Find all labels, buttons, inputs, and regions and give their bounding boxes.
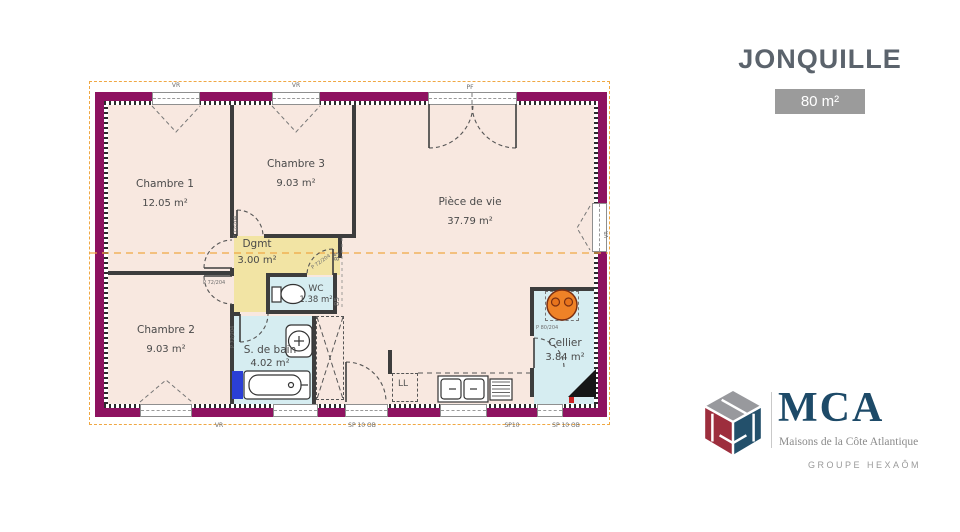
room-area: 4.02 m² [244,358,296,370]
room-area: 9.03 m² [137,344,195,356]
title-block: JONQUILLE 80 m² [720,44,920,114]
door-label-bath: P 72/204 [230,326,236,348]
room-area: 12.05 m² [136,198,194,210]
window-label-bottom-4: SP 10 OB [552,422,580,429]
window-label-bottom-3: SP10 [504,422,519,429]
room-name: Chambre 1 [136,178,194,190]
dim-label-85-a: 85 [334,252,340,261]
brand-tagline: Maisons de la Côte Atlantique [779,436,924,448]
room-label-chambre3: Chambre 3 9.03 m² [267,158,325,190]
window-label-bottom-1: VR [215,422,223,429]
room-name: Chambre 2 [137,324,195,336]
room-name: Pièce de vie [438,196,501,208]
room-label-dgmt: Dgmt 3.00 m² [237,238,276,267]
room-area: 3.00 m² [237,255,276,267]
room-name: S. de bain [244,344,296,356]
room-name: Cellier [545,337,584,349]
washing-machine-label: LL [398,381,408,387]
brand-group: GROUPE HEXAÔM [779,460,921,470]
room-label-cellier: Cellier 3.84 m² [545,337,584,364]
door-label-cellier: P 80/204 [536,325,558,331]
room-area: 37.79 m² [438,216,501,228]
room-name: WC [299,284,332,294]
room-label-salle-de-bain: S. de bain 4.02 m² [244,344,296,370]
room-area: 3.84 m² [545,352,584,364]
room-label-piece-de-vie: Pièce de vie 37.79 m² [438,196,501,228]
logo-divider [771,392,772,448]
room-label-chambre1: Chambre 1 12.05 m² [136,178,194,210]
door-label-c3: P 72/204 [233,216,239,238]
dim-label-85-b: 85 [334,297,340,306]
room-name: Chambre 3 [267,158,325,170]
area-badge: 80 m² [775,89,865,114]
brand-name: MCA [778,384,884,432]
window-label-top-2: VR [292,82,300,89]
room-area: 1.38 m² [299,295,332,305]
window-label-bottom-2: SP 10 OB [348,422,376,429]
model-title: JONQUILLE [720,44,920,75]
door-label-c2: P 72/204 [203,280,225,286]
room-label-chambre2: Chambre 2 9.03 m² [137,324,195,356]
room-label-wc: WC 1.38 m² [299,284,332,305]
room-area: 9.03 m² [267,178,325,190]
room-name: Dgmt [237,238,276,250]
mca-cube-logo [702,390,764,458]
water-heater-icon [547,290,577,320]
window-label-right: VR [604,231,610,238]
page: Chambre 1 12.05 m² Chambre 3 9.03 m² Piè… [0,0,960,532]
window-label-top-1: VR [172,82,180,89]
window-label-top-3: PF [466,84,473,91]
